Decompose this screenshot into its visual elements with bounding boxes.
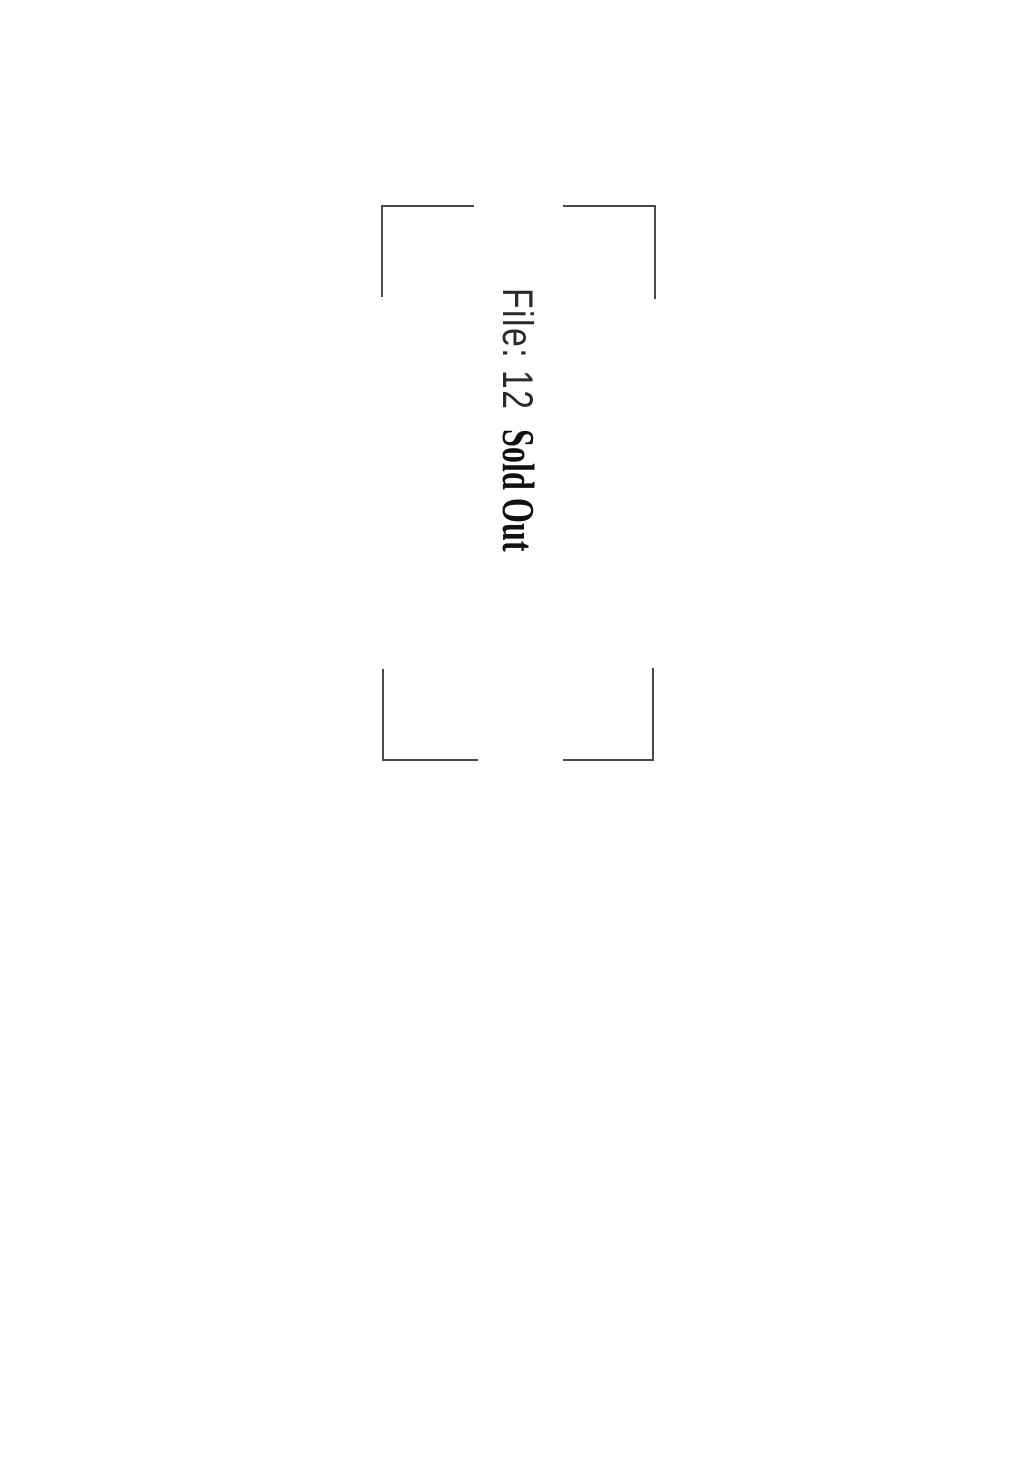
frame-bracket-bottom-right	[563, 668, 654, 761]
file-number-label: File: 12	[492, 288, 541, 410]
vertical-title-block: File: 12 Sold Out	[491, 288, 545, 550]
frame-bracket-bottom-left	[382, 669, 478, 761]
chapter-title: Sold Out	[492, 429, 545, 552]
scanned-page: File: 12 Sold Out	[0, 0, 1024, 1471]
frame-bracket-top-left	[381, 205, 474, 297]
frame-bracket-top-right	[563, 205, 656, 299]
